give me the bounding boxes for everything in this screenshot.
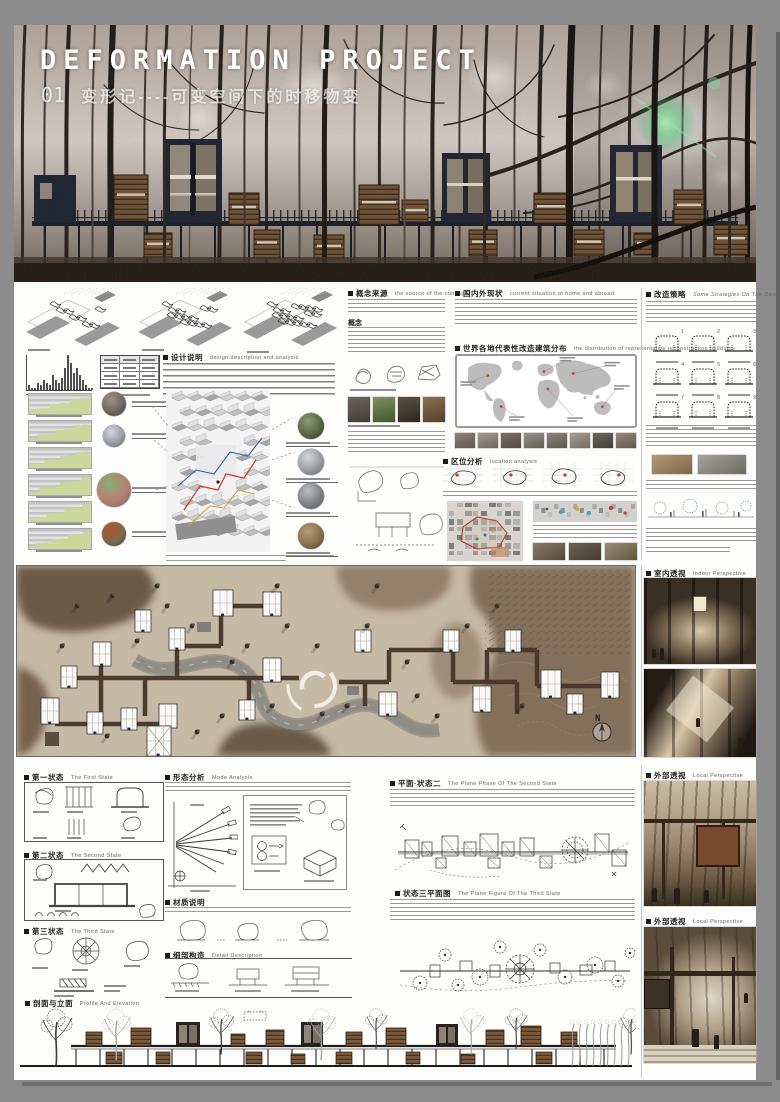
bullet-icon [646, 773, 651, 778]
bullet-icon [24, 929, 29, 934]
steel-column [662, 819, 665, 899]
diagram-number: 2 [717, 329, 720, 335]
arch-strategy-diagram: 4 [652, 364, 682, 396]
heading-plan-state2: 平面·状态二 The Plane Phase Of The Second Sta… [390, 778, 557, 789]
person-silhouette [674, 888, 680, 904]
photo-caption [286, 478, 330, 480]
project-number: 01 [41, 83, 65, 107]
axon-caption-1 [28, 349, 50, 351]
presentation-board: DEFORMATION PROJECT 01 变形记----可变空间下的时移物变… [14, 25, 756, 1080]
bullet-icon [646, 571, 651, 576]
bullet-icon [455, 291, 460, 296]
bar [49, 385, 51, 390]
bullet-icon [348, 291, 353, 296]
poster-shadow [776, 32, 780, 1080]
bar [61, 378, 63, 391]
concept-text-1 [348, 299, 445, 315]
photo-caption [132, 433, 166, 435]
arch-strategy-diagram: 5 [688, 364, 718, 396]
table-cell [120, 380, 139, 388]
green-schedule-chart [28, 420, 92, 442]
bar [73, 373, 75, 391]
photo-caption [132, 531, 166, 533]
green-schedule-chart [28, 501, 92, 523]
plan-state2-drawing [390, 812, 635, 884]
table-cell [140, 372, 159, 380]
concept-text-2 [348, 327, 445, 353]
bar [76, 368, 78, 391]
material-text [165, 907, 351, 914]
person-silhouette [714, 1035, 719, 1049]
bar [85, 385, 87, 390]
reference-photo [616, 433, 636, 448]
first-state-diagrams [24, 782, 164, 842]
steel-column [670, 947, 674, 1057]
cave-house-photo [423, 397, 445, 422]
chart-fill [29, 448, 91, 468]
diagram-number: 1 [681, 329, 684, 335]
context-photo [569, 543, 601, 560]
temple-photo [102, 522, 126, 546]
world-map-panel [455, 354, 637, 428]
arch-strategy-diagram: 1 [652, 331, 682, 363]
table-cell [101, 372, 120, 380]
detail-sketches [165, 958, 352, 998]
bar [67, 355, 69, 390]
axon-caption-2 [142, 349, 164, 351]
site-outline-diagram [493, 463, 533, 487]
heading-strategy: 改造策略 Some Strategies On The Design [646, 289, 780, 300]
diagram-number: 4 [681, 362, 684, 368]
poster-photo-page: DEFORMATION PROJECT 01 变形记----可变空间下的时移物变… [0, 0, 780, 1102]
column-divider [641, 288, 642, 560]
chart-caption [36, 415, 82, 417]
bullet-icon [24, 775, 29, 780]
bullet-icon [646, 919, 651, 924]
person-silhouette [692, 1029, 699, 1047]
context-photo [533, 543, 565, 560]
bar [82, 380, 84, 390]
strategy-text-3 [646, 480, 756, 492]
strategy-text-2 [646, 425, 756, 449]
diagram-number: 5 [717, 362, 720, 368]
site-outline-diagram [443, 463, 483, 487]
site-outline-diagram [593, 463, 633, 487]
site-axon-diagrams [24, 288, 342, 350]
reference-photo [501, 433, 521, 448]
person-silhouette [696, 718, 700, 727]
chart-fill [29, 502, 91, 522]
indoor-perspective-photo-2 [644, 669, 756, 757]
heading-concept: 概念来源 the source of the concept [348, 288, 467, 299]
reference-photo [455, 433, 475, 448]
project-title: DEFORMATION PROJECT [40, 45, 482, 76]
bar [43, 380, 45, 390]
diagram-number: 3 [753, 329, 756, 335]
north-arrow-label: N [595, 714, 600, 724]
steel-beam [644, 971, 756, 976]
case-photos-caption [348, 425, 400, 427]
site-outline-diagram [543, 463, 583, 487]
street-shop-photo [102, 392, 126, 416]
dark-panel [644, 979, 670, 1009]
table-cell [120, 364, 139, 372]
mode-analysis-text [165, 782, 351, 793]
concept-text-3 [348, 431, 445, 452]
basketball-court-photo [97, 473, 131, 507]
green-schedule-chart [28, 393, 92, 415]
outdoor-perspective-photo-1 [644, 781, 756, 906]
chart-caption [36, 469, 82, 471]
bullet-icon [165, 900, 170, 905]
plan-state3-drawing [390, 925, 635, 999]
second-state-diagrams [24, 859, 164, 921]
bullet-icon [163, 355, 168, 360]
photo-caption [132, 401, 166, 403]
green-schedule-chart [28, 528, 92, 550]
person-silhouette [744, 993, 748, 1003]
concept-sketch-caption [350, 389, 396, 391]
bar [52, 375, 54, 390]
diagram-number: 8 [717, 395, 720, 401]
bar [91, 388, 93, 391]
column-divider [641, 565, 642, 757]
person-silhouette [652, 649, 656, 658]
reference-photo [524, 433, 544, 448]
table-cell [120, 372, 139, 380]
column-divider [641, 765, 642, 1078]
status-text [455, 299, 637, 325]
site-histogram-chart [26, 355, 92, 391]
window-highlight [693, 596, 707, 612]
chart-caption [36, 496, 82, 498]
table-cell [101, 380, 120, 388]
mode-analysis-panel [243, 795, 347, 890]
photo-caption-line [286, 516, 338, 517]
dark-tower-photo [348, 397, 370, 422]
bullet-icon [165, 775, 170, 780]
arch-strategy-diagram: 6 [724, 364, 754, 396]
steel-column [732, 957, 735, 1057]
city-3d-model [166, 390, 270, 552]
strip-map [533, 501, 637, 522]
photo-caption [286, 442, 330, 444]
green-schedule-chart [28, 474, 92, 496]
elevation-drawing [16, 1008, 636, 1078]
bar [34, 388, 36, 391]
bullet-icon [395, 891, 400, 896]
project-subtitle: 变形记----可变空间下的时移物变 [81, 83, 361, 107]
person-silhouette [652, 888, 657, 902]
heading-outdoor-perspective-2: 外部透视 Local Perspective [646, 916, 743, 927]
diagram-number: 7 [681, 395, 684, 401]
city-model-caption-2 [166, 560, 286, 563]
heading-outdoor-perspective-1: 外部透视 Local Perspective [646, 770, 743, 781]
data-table [100, 355, 160, 389]
reference-photo [570, 433, 590, 448]
steel-beam [644, 819, 756, 823]
diagram-number: 6 [753, 362, 756, 368]
table-cell [101, 356, 120, 364]
chart-caption [36, 550, 82, 552]
bullet-icon [646, 292, 651, 297]
chart-fill [29, 394, 91, 414]
strategy-text-1 [646, 301, 756, 325]
poster-shadow-bottom [22, 1082, 772, 1086]
master-plan [16, 565, 636, 757]
heading-status: 国内外现状 current situation at home and abro… [455, 288, 614, 299]
master-plan-drawing [17, 566, 635, 756]
bar [64, 368, 66, 391]
bullet-icon [455, 346, 460, 351]
plan-state3-text [390, 899, 635, 921]
interior-photo [398, 397, 420, 422]
photo-caption-line [286, 446, 338, 447]
material-sketches [165, 918, 352, 946]
bullet-icon [25, 1001, 30, 1006]
reference-photo [478, 433, 498, 448]
indoor-perspective-photo-1 [644, 578, 756, 664]
mode-analysis-sketch [166, 798, 238, 894]
chart-caption [36, 523, 82, 525]
location-text-1 [443, 491, 637, 498]
white-apartment-photo [298, 449, 324, 475]
bar [88, 388, 90, 391]
chart-caption [36, 442, 82, 444]
bullet-icon [390, 781, 395, 786]
heading-plan-state3: 状态三平面图 The Plane Figure Of The Third Sta… [395, 888, 561, 899]
table-cell [101, 364, 120, 372]
rubble-site-photo [698, 455, 746, 474]
rust-box-pavilion [696, 825, 740, 867]
figure-ground-map [447, 501, 523, 561]
plan-state2-text [390, 789, 635, 807]
person-silhouette [738, 737, 742, 749]
city-model-caption [166, 555, 334, 558]
third-state-diagrams [24, 935, 162, 999]
photo-caption [132, 487, 166, 489]
person-silhouette [660, 648, 664, 660]
bar [55, 380, 57, 390]
green-towers-photo [298, 413, 324, 439]
chart-fill [29, 529, 91, 549]
bar [28, 385, 30, 390]
gray-building-photo [298, 483, 324, 509]
bar [58, 383, 60, 391]
photo-caption [286, 512, 330, 514]
context-photo [605, 543, 637, 560]
reference-photo [593, 433, 613, 448]
table-cell [140, 356, 159, 364]
bar [70, 363, 72, 391]
arch-strategy-diagram: 2 [688, 331, 718, 363]
green-schedule-chart [28, 447, 92, 469]
concept-sketches [350, 358, 445, 386]
person-silhouette [704, 890, 709, 903]
reference-photo [547, 433, 567, 448]
project-subtitle-row: 01 变形记----可变空间下的时移物变 [41, 83, 361, 107]
table-cell [140, 364, 159, 372]
location-text-2 [533, 525, 637, 540]
strategy-text-5 [646, 547, 730, 555]
arch-strategy-diagram: 3 [724, 331, 754, 363]
steps [644, 1045, 756, 1063]
table-cell [140, 380, 159, 388]
bar [40, 385, 42, 390]
chart-fill [29, 475, 91, 495]
outdoor-perspective-photo-2 [644, 927, 756, 1063]
stair-light-band [666, 676, 734, 743]
diagram-number: 9 [753, 395, 756, 401]
bullet-icon [24, 853, 29, 858]
timber-slats-photo [652, 455, 692, 474]
concept-bottom-sketches [348, 457, 447, 557]
world-map [457, 356, 635, 426]
white-building-photo [103, 425, 125, 447]
photo-caption [286, 552, 330, 554]
green-tower-photo [373, 397, 395, 422]
bar [31, 388, 33, 391]
table-cell [120, 356, 139, 364]
hero-forest-render: DEFORMATION PROJECT 01 变形记----可变空间下的时移物变 [14, 25, 756, 282]
strategy-text-4 [646, 528, 756, 544]
pagoda-photo [298, 523, 324, 549]
bar [46, 383, 48, 391]
strategy-sketch-panel [646, 497, 756, 523]
chart-fill [29, 421, 91, 441]
heading-design-description: 设计说明 design description and analysis [163, 352, 299, 363]
bar [79, 375, 81, 390]
bar [37, 383, 39, 391]
